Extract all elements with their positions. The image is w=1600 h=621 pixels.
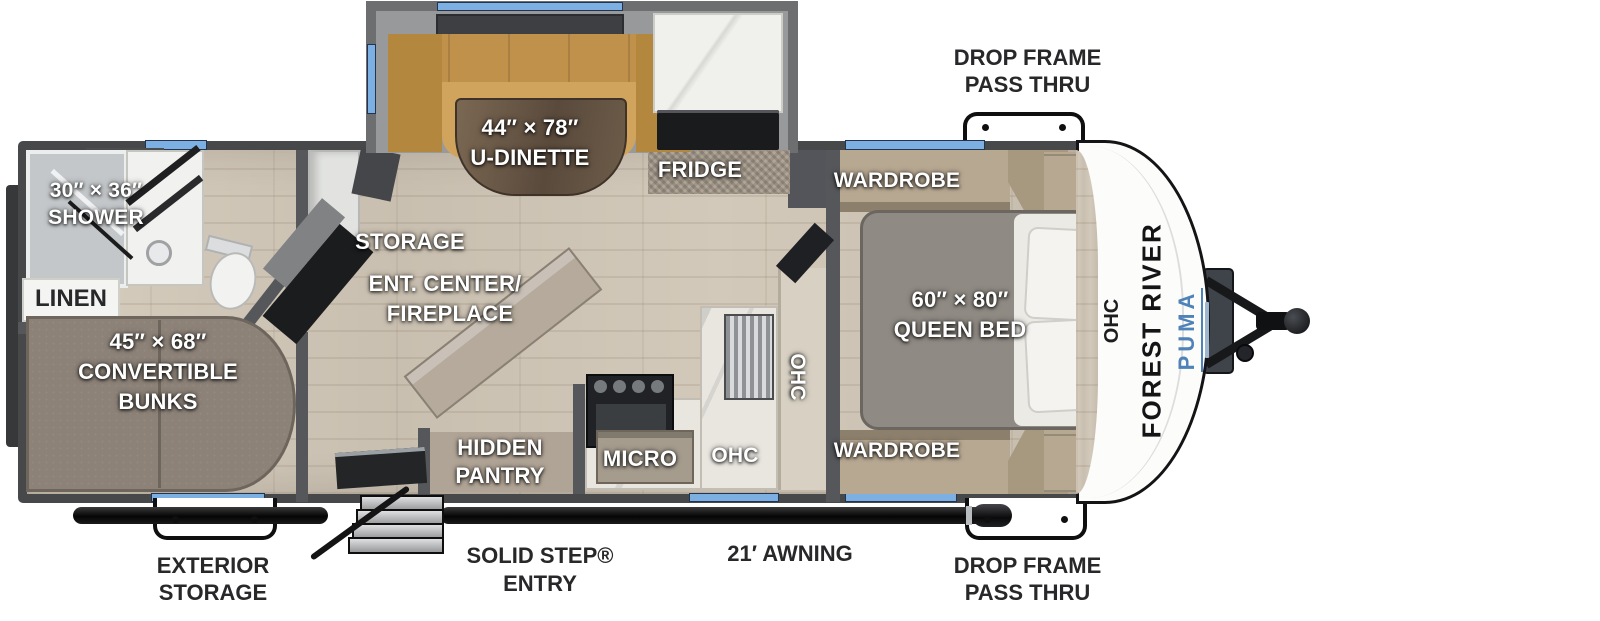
awning-bar bbox=[440, 507, 1010, 524]
fireplace-label: FIREPLACE bbox=[360, 302, 540, 325]
sink-cover bbox=[724, 314, 774, 400]
dinette-label-dim: 44″ × 78″ bbox=[440, 116, 620, 139]
shower-label: SHOWER bbox=[26, 207, 166, 229]
stove-burner bbox=[594, 380, 607, 393]
tongue-jack bbox=[1236, 344, 1254, 362]
solid-step-label-2: ENTRY bbox=[450, 572, 630, 596]
rear-bumper-bar bbox=[73, 507, 328, 524]
bunks-label-1: CONVERTIBLE bbox=[58, 360, 258, 383]
bunks-label-2: BUNKS bbox=[58, 390, 258, 413]
linen-label: LINEN bbox=[29, 286, 113, 312]
hitch-ball-knob bbox=[1284, 308, 1310, 334]
window bbox=[845, 493, 957, 502]
drop-frame-top-label-2: PASS THRU bbox=[940, 73, 1115, 97]
entry-step bbox=[348, 537, 444, 554]
awning-label: 21′ AWNING bbox=[700, 542, 880, 566]
ohc-label-kitchen: OHC bbox=[695, 445, 775, 467]
ohc-label-front: OHC bbox=[1101, 291, 1123, 351]
slideout-window bbox=[437, 2, 623, 11]
vanity-sink bbox=[146, 240, 172, 266]
shower-label-dim: 30″ × 36″ bbox=[26, 180, 166, 202]
window bbox=[845, 140, 985, 150]
awning-bar-ring bbox=[966, 506, 972, 525]
ent-center-label: ENT. CENTER/ bbox=[345, 272, 545, 295]
exterior-storage-label-2: STORAGE bbox=[123, 581, 303, 605]
bunk-room-wall bbox=[296, 332, 308, 502]
slideout-window-side bbox=[367, 44, 376, 114]
drop-frame-top-label-1: DROP FRAME bbox=[940, 46, 1115, 70]
solid-step-label-1: SOLID STEP® bbox=[450, 544, 630, 568]
ohc-label-kitchen-vertical: OHC bbox=[786, 347, 808, 407]
brand-logo: FOREST RIVER bbox=[1138, 190, 1167, 470]
entry-bench bbox=[335, 447, 427, 489]
awning-bar-end-cap bbox=[972, 504, 1012, 527]
pantry-label-2: PANTRY bbox=[430, 464, 570, 487]
window bbox=[689, 493, 779, 502]
drop-frame-bottom-label-1: DROP FRAME bbox=[940, 554, 1115, 578]
queen-bed-label: QUEEN BED bbox=[860, 318, 1060, 341]
micro-label: MICRO bbox=[585, 447, 695, 470]
model-logo-subline bbox=[1205, 302, 1209, 358]
pantry-label-1: HIDDEN bbox=[430, 436, 570, 459]
exterior-storage-label-1: EXTERIOR bbox=[123, 554, 303, 578]
pantry-wall-right bbox=[573, 384, 585, 494]
fridge-cabinet bbox=[653, 13, 783, 113]
dinette-left-cushion bbox=[388, 34, 442, 152]
model-logo-block: PUMA bbox=[1176, 270, 1220, 390]
storage-label: STORAGE bbox=[340, 230, 480, 253]
queen-bed-label-dim: 60″ × 80″ bbox=[860, 288, 1060, 311]
fridge-label: FRIDGE bbox=[630, 158, 770, 181]
bunks-label-dim: 45″ × 68″ bbox=[58, 330, 258, 353]
drop-frame-bottom-label-2: PASS THRU bbox=[940, 581, 1115, 605]
dinette-label: U-DINETTE bbox=[440, 146, 620, 169]
rv-floor-plan: 30″ × 36″ SHOWER LINEN 44″ × 78″ U-DINET… bbox=[0, 0, 1600, 621]
stove-burner bbox=[632, 380, 645, 393]
wardrobe-label-top: WARDROBE bbox=[812, 170, 982, 192]
stove-burner bbox=[613, 380, 626, 393]
wardrobe-label-bottom: WARDROBE bbox=[812, 440, 982, 462]
fridge bbox=[657, 110, 779, 150]
stove-burner bbox=[651, 380, 664, 393]
model-logo: PUMA bbox=[1176, 270, 1198, 390]
model-logo-underline bbox=[1201, 288, 1203, 372]
